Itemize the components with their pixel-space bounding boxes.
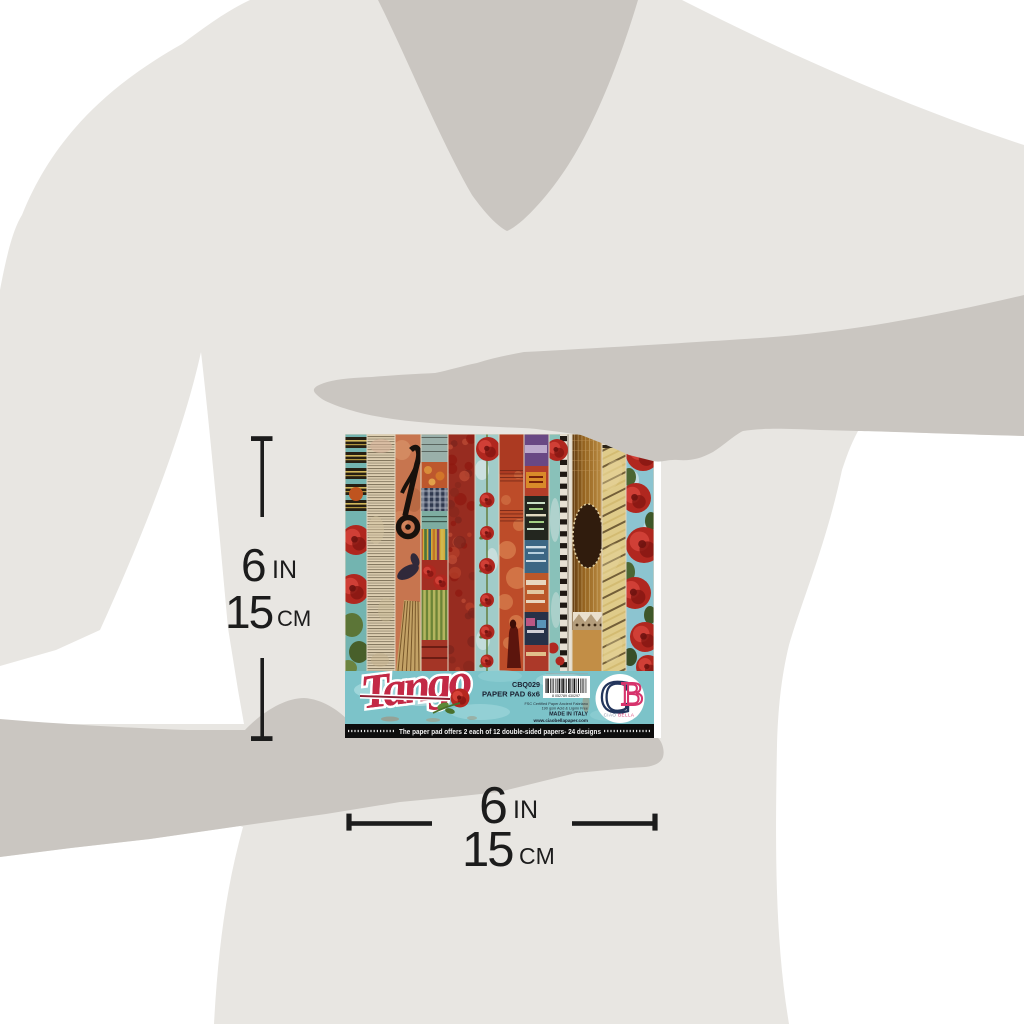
svg-text:The paper pad offers 2 each of: The paper pad offers 2 each of 12 double… xyxy=(399,729,601,736)
svg-text:CM: CM xyxy=(519,843,555,869)
svg-text:IN: IN xyxy=(272,556,297,584)
svg-text:CM: CM xyxy=(277,606,311,631)
svg-text:CBQ029: CBQ029 xyxy=(512,680,540,689)
svg-text:6: 6 xyxy=(241,539,267,591)
svg-text:15: 15 xyxy=(225,586,273,638)
svg-text:FSC Certified Paper Ancient Fa: FSC Certified Paper Ancient Fabriano xyxy=(524,702,588,706)
svg-text:IN: IN xyxy=(513,796,538,824)
svg-text:8 052789 430297: 8 052789 430297 xyxy=(552,694,580,698)
svg-text:PAPER PAD 6x6: PAPER PAD 6x6 xyxy=(482,690,540,699)
svg-text:15: 15 xyxy=(462,823,513,877)
svg-text:MADE IN ITALY: MADE IN ITALY xyxy=(549,712,588,718)
svg-text:www.ciaobellapaper.com: www.ciaobellapaper.com xyxy=(533,718,588,723)
svg-text:190 gsm Acid & Lignin Free: 190 gsm Acid & Lignin Free xyxy=(542,706,588,710)
svg-text:CIAO BELLA: CIAO BELLA xyxy=(604,713,635,718)
svg-text:B: B xyxy=(621,676,644,713)
